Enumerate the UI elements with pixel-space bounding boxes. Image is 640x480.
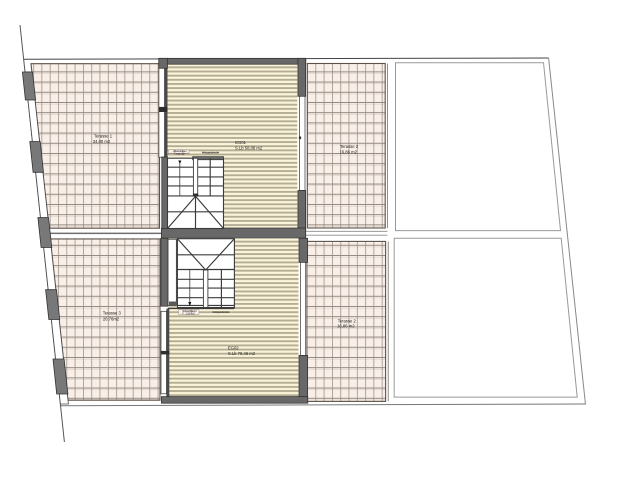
svg-text:Terasse 2: Terasse 2 [340,144,359,149]
svg-text:20,76m2: 20,76m2 [103,317,120,322]
svg-text:Terasse 1: Terasse 1 [94,134,113,139]
svg-text:1,50 m2: 1,50 m2 [175,152,185,156]
svg-text:34,00 m2: 34,00 m2 [93,139,111,144]
svg-text:S.Lb 58,08 m2: S.Lb 58,08 m2 [235,146,263,151]
svg-text:S.Lb 78,46 m2: S.Lb 78,46 m2 [228,351,256,356]
svg-text:EG02: EG02 [228,345,239,350]
svg-text:EG01: EG01 [235,140,246,145]
svg-text:16,86 m2: 16,86 m2 [339,149,357,154]
svg-text:16,86 m2: 16,86 m2 [337,323,355,328]
svg-text:Terasse 3: Terasse 3 [103,311,122,316]
svg-text:1,50 m2: 1,50 m2 [185,312,195,316]
